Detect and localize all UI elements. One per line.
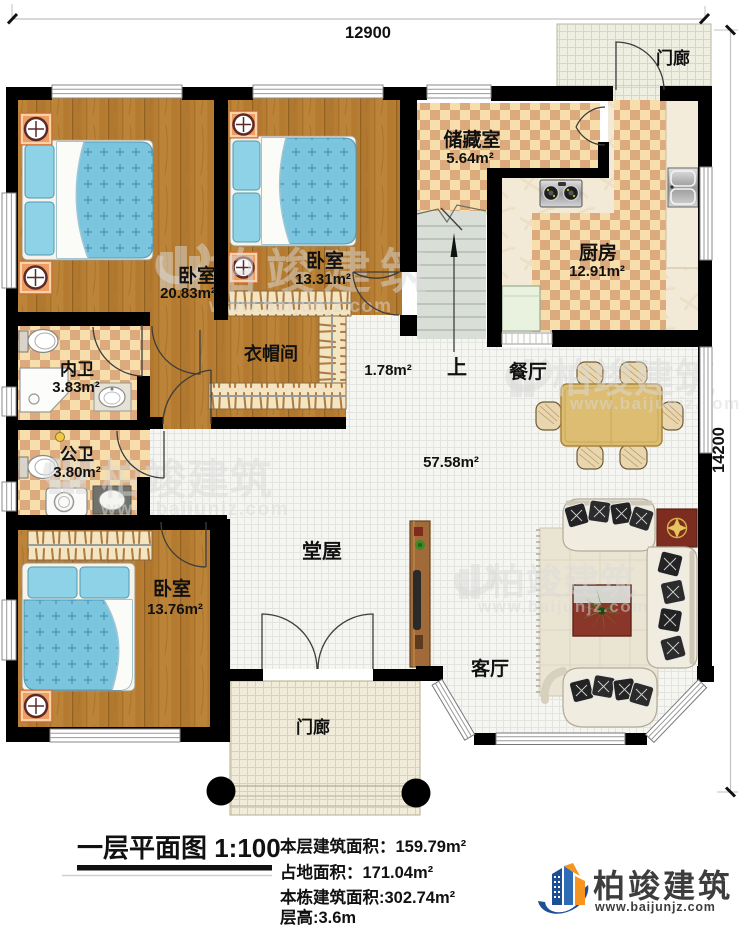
svg-text:20.83m²: 20.83m² [160, 285, 216, 302]
svg-text:柏竣建筑: 柏竣建筑 [101, 456, 273, 503]
svg-text:堂屋: 堂屋 [302, 540, 342, 563]
svg-text:3.80m²: 3.80m² [53, 464, 101, 481]
svg-text:储藏室: 储藏室 [443, 128, 500, 151]
svg-text:5.64m²: 5.64m² [446, 150, 494, 167]
svg-text:占地面积：171.04m²: 占地面积：171.04m² [280, 862, 434, 882]
svg-text:www.baijunjz.com: www.baijunjz.com [208, 296, 392, 317]
svg-text:14200: 14200 [710, 427, 728, 473]
svg-text:内卫: 内卫 [60, 359, 94, 379]
svg-text:13.76m²: 13.76m² [147, 601, 203, 618]
svg-text:柏竣建筑: 柏竣建筑 [489, 561, 637, 602]
svg-text:一层平面图 1:100: 一层平面图 1:100 [77, 833, 281, 863]
svg-text:柏竣建筑: 柏竣建筑 [593, 868, 733, 904]
svg-text:公卫: 公卫 [60, 445, 94, 464]
svg-text:1.78m²: 1.78m² [364, 362, 412, 379]
svg-text:57.58m²: 57.58m² [423, 454, 479, 471]
svg-text:门廊: 门廊 [296, 717, 330, 737]
svg-text:卧室: 卧室 [178, 264, 216, 287]
svg-text:本层建筑面积：159.79m²: 本层建筑面积：159.79m² [280, 836, 467, 856]
svg-text:12.91m²: 12.91m² [569, 263, 625, 280]
svg-text:www.baijunjz.com: www.baijunjz.com [569, 394, 741, 413]
svg-text:卧室: 卧室 [306, 249, 344, 272]
svg-text:客厅: 客厅 [471, 657, 509, 680]
svg-text:3.83m²: 3.83m² [52, 379, 100, 396]
svg-text:13.31m²: 13.31m² [295, 271, 351, 288]
svg-text:www.baijunjz.com: www.baijunjz.com [477, 597, 649, 616]
svg-text:上: 上 [447, 356, 467, 379]
svg-text:门廊: 门廊 [656, 48, 690, 68]
svg-text:本栋建筑面积:302.74m²: 本栋建筑面积:302.74m² [280, 887, 456, 907]
svg-text:12900: 12900 [345, 24, 391, 42]
svg-text:层高:3.6m: 层高:3.6m [280, 907, 356, 927]
svg-text:卧室: 卧室 [153, 577, 191, 600]
svg-text:厨房: 厨房 [579, 241, 617, 264]
svg-text:餐厅: 餐厅 [509, 360, 547, 383]
svg-text:www.baijunjz.com: www.baijunjz.com [594, 900, 716, 914]
svg-text:衣帽间: 衣帽间 [244, 343, 298, 364]
